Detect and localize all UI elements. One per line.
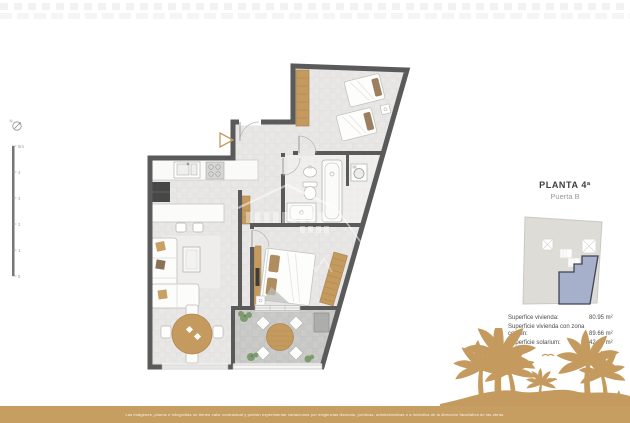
scale-tick: 2 (18, 222, 21, 227)
nightstand (380, 104, 391, 115)
tv (256, 268, 260, 286)
kitchen-island (152, 204, 224, 222)
bar-stool (193, 223, 203, 232)
sofa-pillow (155, 241, 166, 252)
double-bed (260, 248, 316, 306)
dining-chair (186, 353, 198, 363)
elevator-core (542, 239, 553, 250)
dining-chair (213, 326, 223, 338)
terrace-table (267, 324, 294, 351)
north-label: N (10, 119, 13, 124)
terrace-railing (233, 365, 322, 369)
elevator-core (582, 239, 596, 253)
storage-bench (314, 313, 329, 332)
page-subtitle: Puerta B (505, 192, 625, 201)
scale-tick: 1 (18, 248, 21, 253)
north-compass-icon: N (10, 119, 22, 131)
footer-disclaimer: Las imágenes, planos e infografías no ti… (0, 406, 630, 423)
kitchen-counter (152, 160, 258, 180)
dining-chair (161, 326, 171, 338)
area-value: 80.95 m² (589, 315, 625, 323)
master-bedroom (256, 248, 347, 306)
bar-stool (176, 223, 186, 232)
footer-bar: Las imágenes, planos e infografías no ti… (0, 406, 630, 423)
sofa-chaise (151, 284, 199, 308)
plan-sheet: N 5m 4 3 2 1 0 PLANTA 4ª Puerta B (0, 0, 630, 423)
sofa-pillow (155, 259, 165, 269)
sofa-pillow (157, 289, 167, 299)
key-plan (518, 211, 613, 309)
cooktop (206, 162, 224, 179)
wardrobe (296, 70, 309, 126)
scale-tick: 4 (18, 170, 21, 175)
area-row: Superfice vivienda: 80.95 m² (508, 315, 625, 323)
nightstand (256, 296, 265, 305)
page-title: PLANTA 4ª (505, 180, 625, 190)
area-label: Superfice vivienda: (508, 315, 589, 323)
dining-chair (186, 305, 198, 315)
scale-tick: 3 (18, 196, 21, 201)
dining-table (172, 314, 212, 354)
pillow (268, 255, 280, 273)
scale-tick: 0 (18, 274, 21, 279)
scale-bar: N 5m 4 3 2 1 0 (8, 116, 34, 284)
scale-top-label: 5m (18, 144, 24, 149)
